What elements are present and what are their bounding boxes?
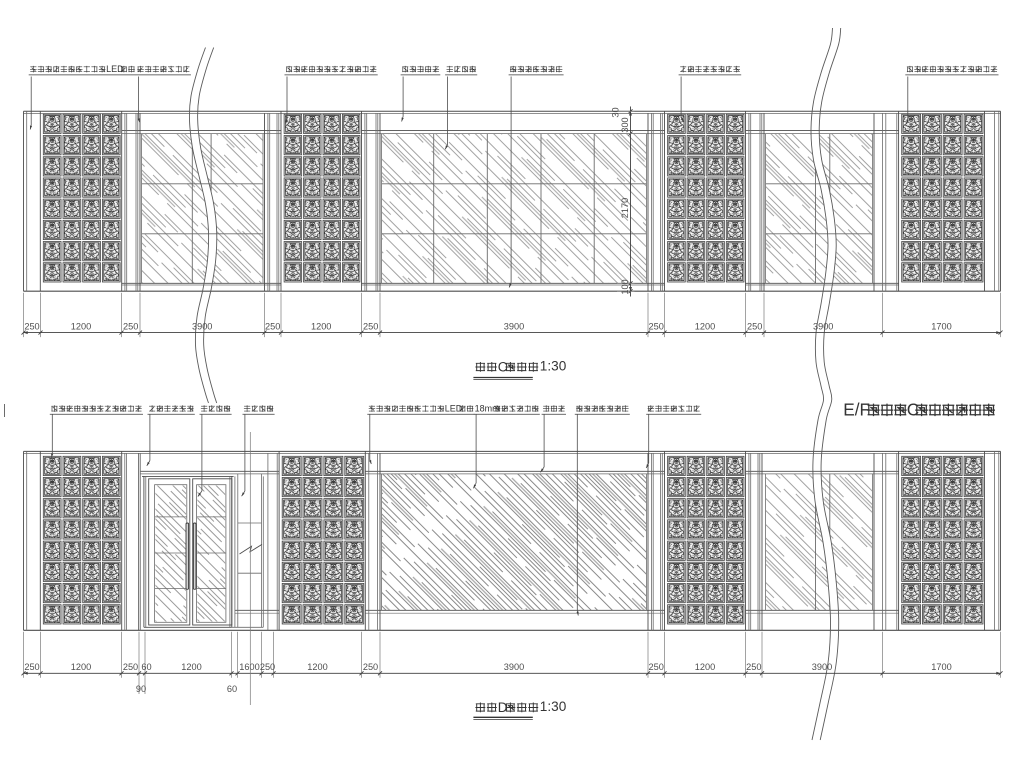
svg-text:1200: 1200 bbox=[695, 662, 715, 672]
svg-text:250: 250 bbox=[649, 662, 664, 672]
svg-text:1200: 1200 bbox=[695, 321, 715, 331]
svg-text:60: 60 bbox=[227, 684, 237, 694]
svg-text:250: 250 bbox=[746, 662, 761, 672]
svg-text:250: 250 bbox=[24, 321, 39, 331]
svg-text:1:30: 1:30 bbox=[540, 359, 567, 374]
svg-text:250: 250 bbox=[123, 321, 138, 331]
svg-text:60: 60 bbox=[141, 662, 151, 672]
svg-text:2170: 2170 bbox=[620, 198, 630, 218]
svg-text:1200: 1200 bbox=[307, 662, 327, 672]
svg-text:3900: 3900 bbox=[812, 662, 832, 672]
svg-text:3900: 3900 bbox=[192, 321, 212, 331]
svg-text:3900: 3900 bbox=[813, 321, 833, 331]
svg-text:250: 250 bbox=[265, 321, 280, 331]
svg-text:1200: 1200 bbox=[181, 662, 201, 672]
svg-text:30: 30 bbox=[611, 107, 621, 117]
svg-text:1700: 1700 bbox=[931, 321, 951, 331]
svg-text:300: 300 bbox=[620, 117, 630, 132]
svg-text:250: 250 bbox=[747, 321, 762, 331]
svg-text:250: 250 bbox=[363, 662, 378, 672]
svg-text:250: 250 bbox=[363, 321, 378, 331]
svg-text:1600: 1600 bbox=[239, 662, 259, 672]
svg-text:250: 250 bbox=[649, 321, 664, 331]
svg-text:250: 250 bbox=[24, 662, 39, 672]
svg-text:1200: 1200 bbox=[71, 321, 91, 331]
svg-text:100: 100 bbox=[620, 279, 630, 294]
svg-text:1:30: 1:30 bbox=[540, 699, 567, 714]
svg-text:90: 90 bbox=[136, 684, 146, 694]
svg-text:3900: 3900 bbox=[504, 321, 524, 331]
svg-text:1200: 1200 bbox=[71, 662, 91, 672]
svg-text:1200: 1200 bbox=[311, 321, 331, 331]
svg-text:250: 250 bbox=[260, 662, 275, 672]
svg-text:250: 250 bbox=[123, 662, 138, 672]
svg-text:1700: 1700 bbox=[931, 662, 951, 672]
svg-text:E/F: E/F bbox=[843, 400, 870, 420]
svg-text:3900: 3900 bbox=[504, 662, 524, 672]
